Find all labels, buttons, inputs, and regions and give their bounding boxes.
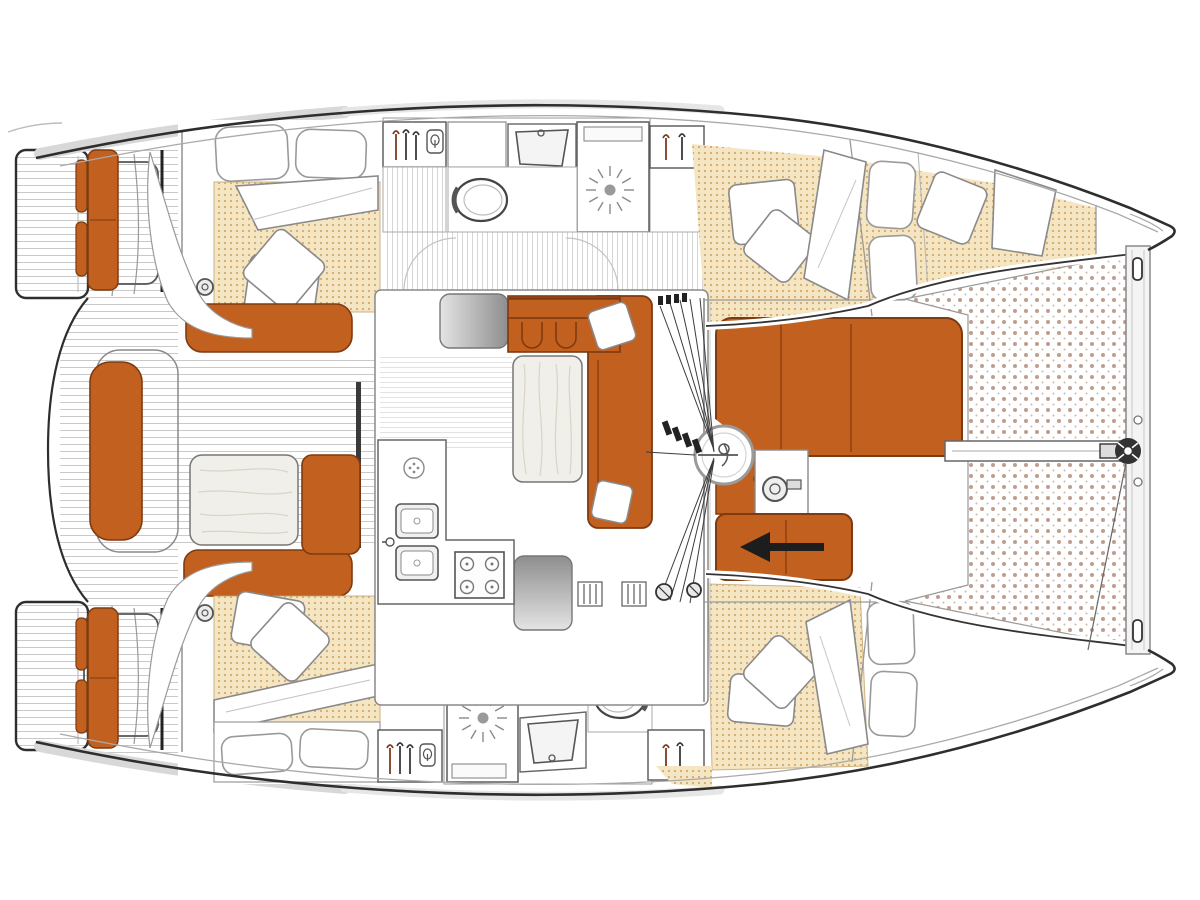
winch-icon [197, 605, 213, 621]
port-hull-corridor [386, 232, 704, 292]
saloon-floor [380, 356, 512, 450]
companionway-steps-starboard [514, 556, 572, 630]
bathroom-floor [383, 167, 446, 232]
bed-pillow [867, 601, 918, 737]
beam-slot [1133, 258, 1142, 280]
saloon [356, 290, 710, 705]
sink-icon [508, 124, 576, 172]
floor-plan-svg [0, 0, 1200, 900]
catamaran-floor-plan [0, 0, 1200, 900]
cockpit-bench [302, 455, 360, 554]
companionway-steps-port [440, 294, 508, 348]
port-bathroom [383, 118, 650, 232]
beam-slot [1133, 620, 1142, 642]
sink-icon [520, 712, 586, 772]
davit-line [8, 123, 62, 132]
bowsprit [945, 441, 1127, 461]
starboard-aft-locker [378, 730, 442, 782]
windlass-locker [755, 450, 808, 514]
aft-bench-cushion [90, 362, 142, 540]
forward-bench [716, 514, 852, 580]
shower-stall [577, 122, 649, 232]
saloon-table [513, 356, 582, 482]
toilet-icon [448, 167, 577, 232]
stove [455, 552, 504, 598]
mast [695, 426, 753, 484]
windlass-icon [763, 477, 787, 501]
sunpad [714, 318, 962, 456]
throw-pillow [590, 480, 633, 525]
cockpit-table [190, 455, 298, 545]
winch-icon [197, 279, 213, 295]
storage-cabinet [448, 122, 506, 167]
